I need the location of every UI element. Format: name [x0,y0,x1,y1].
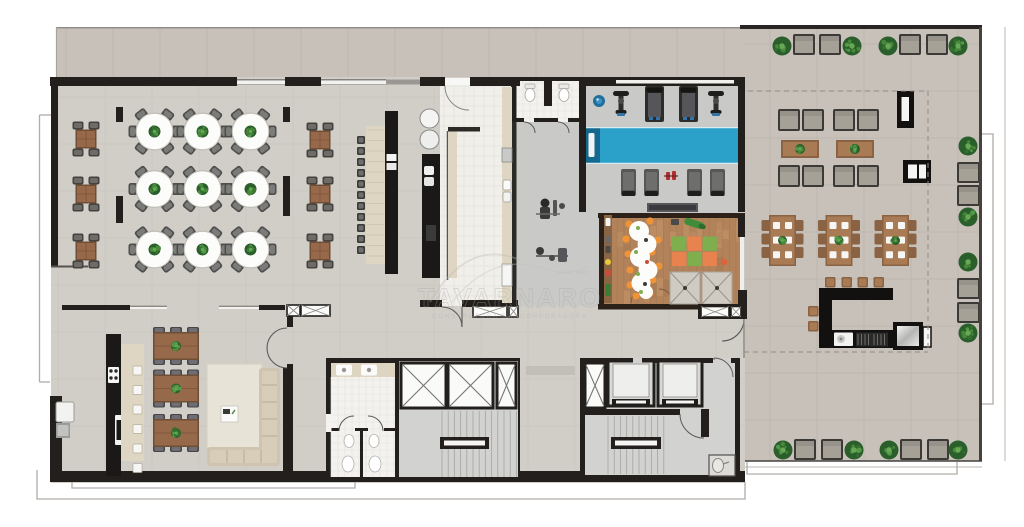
svg-text:CONSTRUTORA E INCORPORADORA: CONSTRUTORA E INCORPORADORA [432,313,587,320]
svg-text:TAVARNARO: TAVARNARO [418,283,602,313]
svg-text:GEO PAU: GEO PAU [558,270,590,276]
